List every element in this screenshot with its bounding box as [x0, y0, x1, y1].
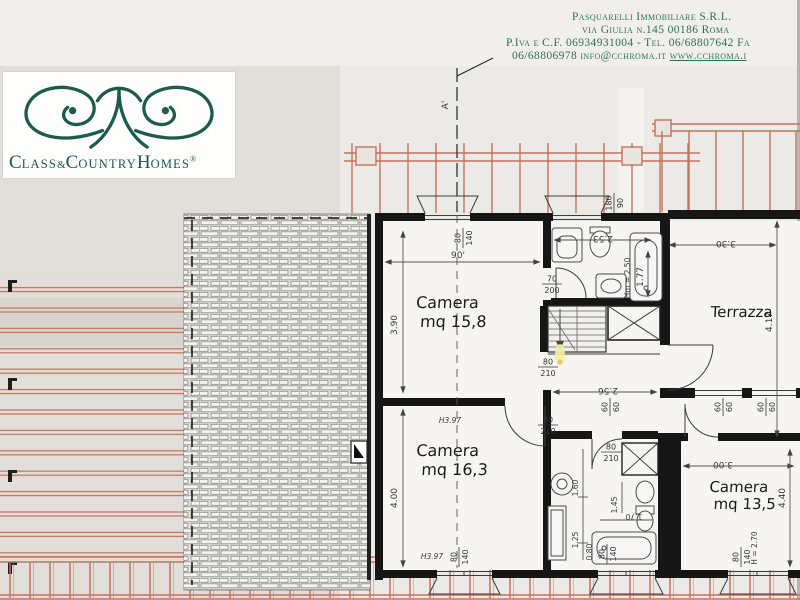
svg-text:80: 80 [543, 358, 553, 367]
dim-170: 1.70 [625, 512, 642, 521]
room-label-camera-135-name: Camera [709, 478, 769, 496]
svg-text:80: 80 [732, 552, 741, 562]
svg-text:60: 60 [601, 402, 610, 412]
room-label-camera-163-area: mq 16,3 [421, 460, 488, 479]
svg-text:60: 60 [757, 402, 766, 412]
brand-c1: C [9, 152, 22, 173]
svg-text:60: 60 [768, 402, 777, 412]
room-label-camera-158-name: Camera [416, 293, 480, 312]
roof-tile-hatch [184, 214, 371, 590]
brand-registered-mark: ® [190, 155, 196, 164]
brand-amp: & [57, 159, 66, 171]
svg-text:80: 80 [606, 443, 616, 452]
svg-text:80: 80 [543, 416, 553, 425]
dim-145: 1.45 [610, 496, 619, 513]
svg-text:80: 80 [454, 233, 463, 243]
svg-text:80: 80 [450, 552, 459, 562]
svg-text:210: 210 [540, 369, 555, 378]
bidet-symbol-2 [636, 481, 654, 503]
svg-text:210: 210 [540, 427, 555, 436]
dim-177: 1.77 [636, 267, 646, 287]
scanned-floor-plan-page: A' 90' 3.90 2.53 Hm = 2.50 1.77 3.30 4.1… [0, 0, 800, 600]
dim-h397-a: H3.97 [439, 416, 462, 425]
dim-125: 1.25 [571, 531, 580, 548]
room-label-camera-135-area: mq 13,5 [713, 495, 776, 513]
logo-emblem [3, 74, 235, 154]
header-contact-text: 06/68806978 info@cchroma.it [512, 50, 670, 62]
pergola-beams [0, 272, 185, 574]
brand-c2: C [66, 152, 79, 173]
logo-box: CLASS&COUNTRYHOMES® [3, 72, 235, 178]
svg-text:210: 210 [603, 454, 618, 463]
svg-text:90: 90 [616, 198, 625, 208]
svg-text:140: 140 [461, 549, 470, 564]
brand-omes: OMES [151, 157, 191, 171]
svg-text:60: 60 [714, 402, 723, 412]
dim-160: 1.60 [571, 479, 580, 496]
header-line-2: via Giulia n.145 00186 Roma [582, 24, 730, 37]
dim-300: 3.00 [713, 459, 733, 469]
dim-90: 90' [451, 251, 465, 261]
brand-ountry: OUNTRY [78, 157, 137, 171]
header-line-4: 06/68806978 info@cchroma.it www.cchroma.… [512, 50, 747, 63]
dim-hm250: Hm = 2.50 [623, 257, 632, 298]
svg-text:140: 140 [465, 230, 474, 245]
dim-400: 4.00 [390, 488, 400, 508]
header-line-1: Pasquarelli Immobiliare S.R.L. [572, 11, 731, 24]
svg-text:80: 80 [598, 549, 607, 559]
svg-text:200: 200 [544, 286, 559, 295]
svg-text:180: 180 [605, 195, 614, 210]
room-label-camera-158-area: mq 15,8 [420, 312, 487, 331]
dim-330: 3.30 [716, 238, 736, 248]
svg-text:70: 70 [547, 275, 557, 284]
section-marker-label: A' [441, 101, 451, 110]
svg-text:60: 60 [725, 402, 734, 412]
dim-440: 4.40 [778, 488, 788, 508]
dim-253: 2.53 [593, 233, 613, 243]
brand-lass: LASS [22, 157, 57, 171]
room-label-terrazza: Terrazza [709, 303, 773, 321]
room-label-camera-163-name: Camera [416, 441, 480, 460]
dim-h397-b: H3.97 [421, 552, 444, 561]
dim-256: 2.56 [598, 385, 618, 395]
brand-wordmark: CLASS&COUNTRYHOMES® [9, 152, 196, 174]
svg-text:60: 60 [612, 402, 621, 412]
dim-390: 3.90 [390, 315, 400, 335]
svg-text:140: 140 [743, 549, 752, 564]
dim-080: 0.80 [585, 543, 594, 560]
header-website-link: www.cchroma.i [670, 50, 747, 62]
header-line-3: P.Iva e C.F. 06934931004 - Tel. 06/68807… [506, 37, 750, 50]
brand-h: H [137, 152, 151, 173]
svg-text:140: 140 [609, 546, 618, 561]
